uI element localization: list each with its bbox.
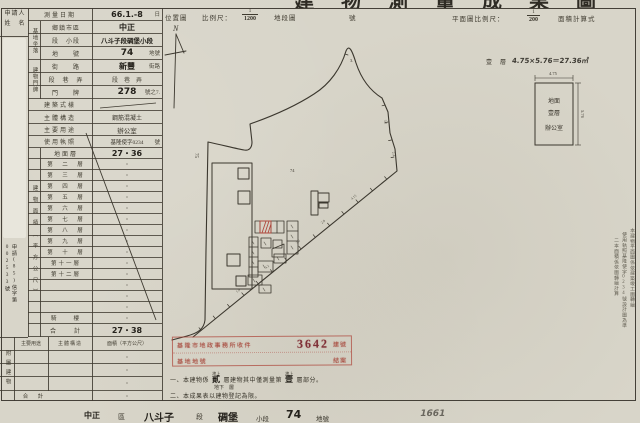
applicant-name-label: 申請人 姓 名 — [2, 10, 28, 36]
footer-subsection-suffix: 小段 — [256, 413, 269, 423]
registry-stamp: 基隆市地政事務所收件 3642 建號 基地地號 結案 — [172, 335, 352, 366]
note-fill-1: 貳 — [212, 376, 221, 384]
footer-district: 中正 — [84, 410, 100, 421]
annex-row: ・ — [0, 364, 162, 377]
note-fill-2: 壹 — [285, 376, 294, 384]
plan-dim-top: 4.75 — [549, 71, 558, 76]
footer-district-suffix: 區 — [118, 412, 125, 422]
plan-room-line1: 地面 — [548, 97, 560, 105]
margin-note-3: 二本面積係依圖轉繪計算 — [612, 238, 619, 338]
svg-text:4.2: 4.2 — [264, 264, 270, 270]
application-ref-number: 申請(85)信字第002533號 — [4, 244, 18, 336]
svg-text:3.6: 3.6 — [295, 239, 301, 245]
small-building — [236, 276, 246, 286]
plan-dim-right: 5.76 — [580, 110, 585, 119]
annex-total-row: 合 計 ・ — [0, 391, 162, 401]
svg-text:3.1: 3.1 — [383, 119, 388, 124]
stamp-line2: 基地地號 — [177, 356, 333, 366]
parcel-label-74: 74 — [290, 168, 295, 173]
street-row: 街 路 新豐 街路 — [28, 60, 162, 73]
small-building — [238, 168, 249, 179]
large-building-outline — [212, 163, 252, 289]
stamp-line2-right: 結案 — [333, 355, 347, 364]
footer-lot-number: 74 — [286, 408, 301, 421]
annex-header-row: 主要用途 主體構造 面積（平方公尺） — [0, 337, 162, 351]
small-building — [238, 191, 250, 204]
note-basement: 地下 層 — [214, 384, 234, 391]
survey-date-value: 66.1.-8 — [111, 10, 143, 19]
note-line-2: 二、本成果表以建物登記為限。 — [170, 391, 261, 400]
survey-date-row: 測量日期 66.1.-8 日 — [28, 8, 162, 21]
annex-row: ・ — [0, 377, 162, 391]
plan-room-line2: 壹層 — [548, 109, 560, 117]
floor-plan: 4.75 5.76 地面 壹層 辦公室 — [535, 71, 585, 145]
small-building — [227, 254, 240, 266]
footer-section: 八斗子 — [144, 409, 174, 423]
margin-note-1: 本建物平面圖係依建築竣工圖轉繪 — [628, 228, 635, 338]
floor-values-slash — [80, 100, 170, 330]
stamp-number: 3642 — [297, 337, 329, 352]
grid-hline — [0, 36, 28, 37]
north-label: N — [172, 24, 179, 33]
svg-text:2.8: 2.8 — [320, 219, 326, 225]
stamp-line1: 基隆市地政事務所收件 — [177, 340, 297, 350]
footer-section-suffix: 段 — [196, 412, 203, 422]
stamp-number-suffix: 建號 — [333, 339, 347, 348]
parcel-label-3: 3. — [350, 58, 353, 63]
dimension-marks: 4.15 2.8 3.6 4.2 1.9 3.1 2.4 — [235, 119, 396, 293]
lot-number-row: 地 號 74 地號 — [28, 47, 162, 60]
parcel-boundary-left — [172, 142, 208, 340]
footer-lot-suffix: 地號 — [316, 413, 329, 423]
svg-text:2.4: 2.4 — [391, 151, 396, 156]
parcel-label-75: 75 — [193, 153, 198, 159]
annex-row: ・ — [0, 351, 162, 364]
svg-text:4.15: 4.15 — [350, 194, 357, 201]
parcel-boundary — [193, 48, 397, 337]
building-survey-form-sheet: 建物測量成果圖 位置圖 比例尺： 1 1200 地段圖 號 平面圖比例尺： 1 … — [0, 0, 640, 423]
lane-alley-row: 段 巷 弄 段 巷 弄 — [28, 73, 162, 86]
form-title-text: 建物測量成果圖 — [294, 0, 623, 8]
plan-room-line3: 辦公室 — [545, 124, 563, 132]
footer-subsection: 碉堡 — [218, 409, 238, 423]
form-title-clipped: 建物測量成果圖 — [290, 0, 638, 8]
door-plate-row: 門 牌 278 號之7. — [28, 86, 162, 99]
subject-building-red — [260, 221, 271, 233]
margin-note-2: 使用執照基隆使字0234號設計圖為準 — [620, 232, 627, 342]
section-row: 段 小段 八斗子段碉堡小段 — [28, 34, 162, 47]
north-arrow-icon — [165, 34, 186, 108]
applicant-blank-area — [3, 38, 26, 238]
footer-handwritten-mark: 1661 — [419, 409, 446, 419]
township-row: 鄉鎮市區 中正 — [28, 21, 162, 34]
note-line-1: 一、本建物係 地上 貳 層建物其中僅測量第 地上 壹 層部分。 — [170, 372, 323, 384]
l-shaped-building — [311, 191, 329, 215]
